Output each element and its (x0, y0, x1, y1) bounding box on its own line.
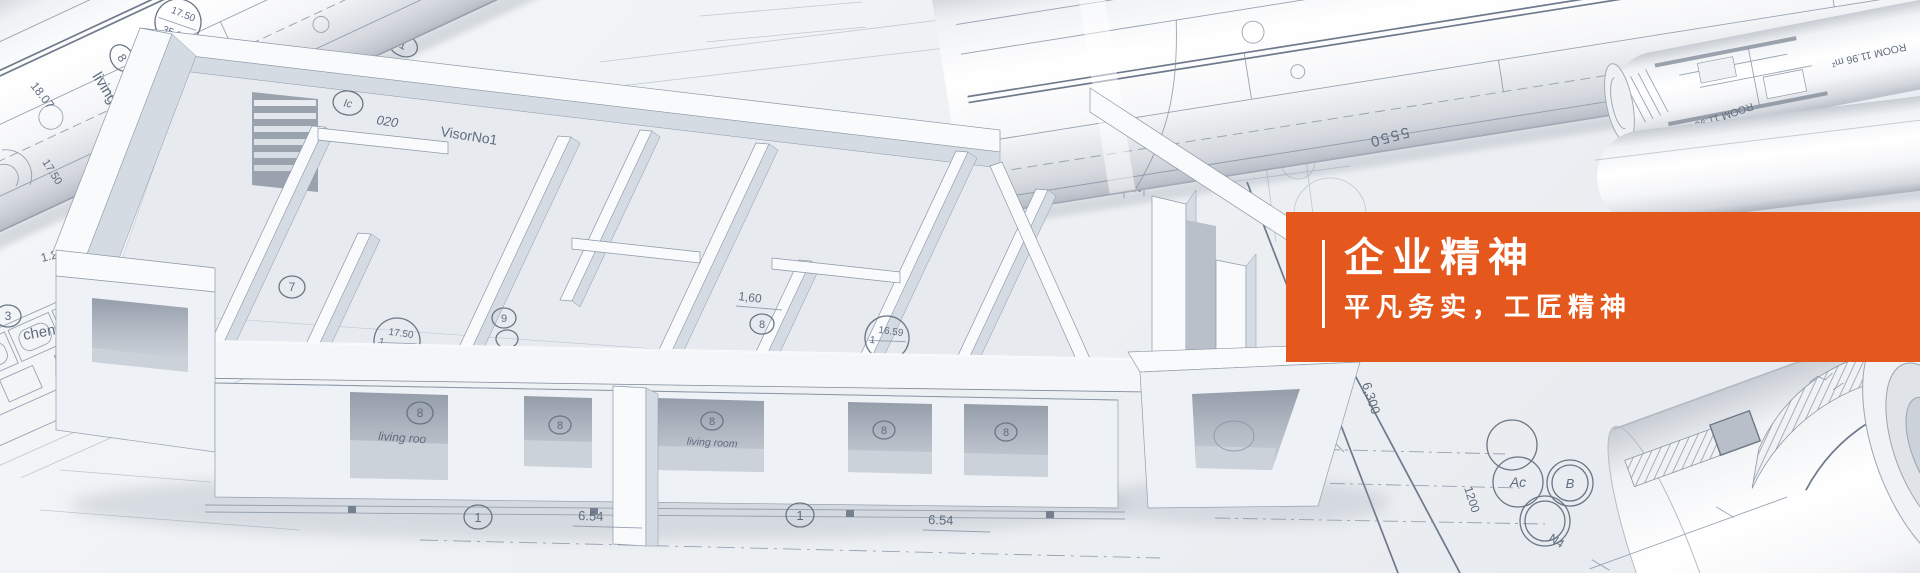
mark-7: 7 (289, 280, 296, 294)
hero-banner: 1.25 3 chen 8.4 6.56 1 3,6 744 6,300 120… (0, 0, 1920, 573)
svg-text:8: 8 (709, 416, 715, 428)
dim-1-60: 1,60 (738, 289, 763, 306)
mark-3: 3 (5, 309, 12, 323)
mark-1-ground-b: 1 (796, 508, 803, 523)
mark-1-ground-a: 1 (474, 510, 481, 525)
mark-n4: N4 (1546, 531, 1567, 551)
dim-6300: 6,300 (1359, 380, 1383, 416)
banner-title: 企业精神 (1344, 238, 1632, 278)
banner-subtitle: 平凡务实，工匠精神 (1344, 294, 1632, 320)
banner-divider (1322, 240, 1325, 328)
svg-text:8: 8 (881, 425, 887, 437)
svg-text:8: 8 (557, 420, 563, 432)
dim-6-54-a: 6.54 (578, 508, 604, 524)
mark-8-floor: 8 (759, 319, 765, 331)
mark-ac: Ac (1509, 474, 1526, 490)
svg-text:8: 8 (417, 406, 424, 420)
svg-text:8: 8 (1003, 427, 1009, 439)
mark-9: 9 (501, 313, 507, 325)
banner-text: 企业精神 平凡务实，工匠精神 (1344, 238, 1632, 320)
dim-1200: 1200 (1461, 485, 1483, 515)
dim-6-54-b: 6.54 (928, 512, 954, 528)
slogan-banner: 企业精神 平凡务实，工匠精神 (1286, 212, 1920, 362)
mark-b: B (1566, 476, 1575, 491)
kitchen-label: chen (22, 322, 57, 344)
